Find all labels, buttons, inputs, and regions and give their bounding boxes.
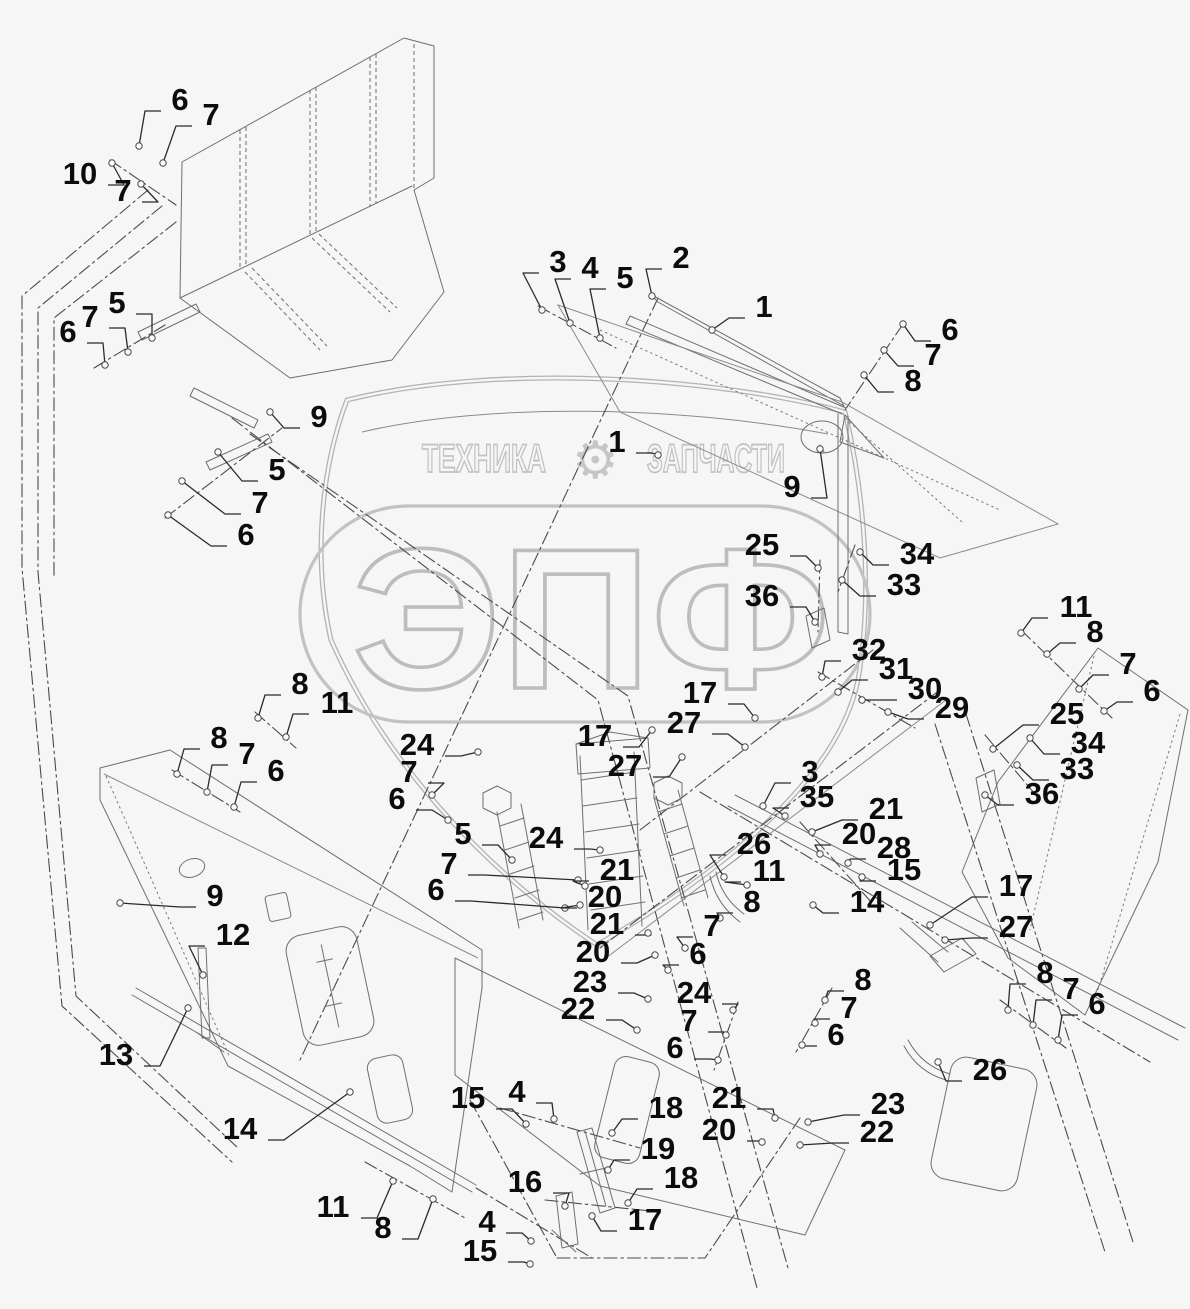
leader-line — [653, 757, 682, 777]
callout-label: 36 — [1025, 776, 1059, 811]
hardware-point — [527, 1261, 533, 1267]
leader-line — [1033, 1000, 1052, 1025]
hardware-point — [200, 972, 206, 978]
hardware-point — [528, 1238, 534, 1244]
leader-line — [120, 903, 196, 907]
mounting-strips — [94, 160, 282, 518]
leader-line — [455, 901, 565, 908]
callout-label: 7 — [114, 173, 131, 208]
callout-label: 14 — [223, 1111, 258, 1146]
callout-label: 6 — [59, 314, 76, 349]
leader-line — [618, 993, 648, 999]
callout-label: 8 — [374, 1210, 391, 1245]
callout-label: 4 — [581, 250, 599, 285]
parts-diagram-stage: ТЕХНИКА ⚙ ЗАПЧАСТИ ЭПФ — [0, 0, 1190, 1309]
hardware-point — [715, 1057, 721, 1063]
hardware-point — [900, 321, 906, 327]
leader-line — [621, 955, 655, 963]
callout-label: 22 — [860, 1114, 894, 1149]
callout-label: 36 — [745, 578, 779, 613]
callout-label: 20 — [842, 816, 876, 851]
hardware-point — [551, 1116, 557, 1122]
callout-label: 8 — [1036, 955, 1053, 990]
callout-label: 17 — [628, 1202, 662, 1237]
leader-line — [189, 946, 205, 975]
hardware-point — [1076, 686, 1082, 692]
hardware-point — [109, 160, 115, 166]
callout-label: 7 — [81, 299, 98, 334]
callout-label: 34 — [900, 536, 935, 571]
hardware-point — [174, 771, 180, 777]
callout-label: 15 — [451, 1080, 485, 1115]
hardware-point — [759, 1139, 765, 1145]
callout-label: 35 — [800, 779, 834, 814]
hardware-point — [819, 674, 825, 680]
leader-line — [1030, 738, 1060, 754]
callout-label: 9 — [310, 399, 327, 434]
callout-label: 20 — [702, 1112, 736, 1147]
hardware-point — [845, 860, 851, 866]
callout-label: 12 — [216, 917, 250, 952]
leader-line — [402, 1199, 433, 1239]
hardware-point — [927, 922, 933, 928]
leader-line — [945, 938, 988, 940]
callout-label: 11 — [753, 853, 786, 888]
callout-label: 18 — [664, 1160, 698, 1195]
leader-line — [468, 875, 578, 880]
hardware-point — [215, 449, 221, 455]
hardware-point — [839, 577, 845, 583]
leader-line — [163, 126, 192, 163]
diagram-svg: ТЕХНИКА ⚙ ЗАПЧАСТИ ЭПФ — [0, 0, 1190, 1309]
callout-label: 13 — [99, 1037, 133, 1072]
hardware-point — [1101, 708, 1107, 714]
hardware-point — [645, 996, 651, 1002]
callout-label: 6 — [689, 936, 706, 971]
hardware-point — [649, 727, 655, 733]
callout-label: 7 — [1119, 646, 1136, 681]
hardware-point — [645, 930, 651, 936]
hardware-point — [817, 446, 823, 452]
hardware-point — [782, 813, 788, 819]
hardware-point — [430, 1196, 436, 1202]
callout-label: 6 — [941, 312, 958, 347]
hardware-point — [652, 952, 658, 958]
callout-label: 11 — [321, 685, 354, 720]
hardware-point — [577, 902, 583, 908]
callout-label: 1 — [608, 424, 625, 459]
callout-label: 8 — [743, 884, 760, 919]
callout-label: 6 — [1143, 673, 1160, 708]
leader-line — [864, 375, 894, 392]
hardware-point — [165, 512, 171, 518]
hardware-point — [136, 143, 142, 149]
hardware-point — [1005, 1007, 1011, 1013]
hardware-point — [179, 478, 185, 484]
hardware-point — [857, 549, 863, 555]
leader-line — [218, 452, 258, 481]
callout-label: 25 — [745, 527, 779, 562]
callout-label: 5 — [616, 260, 633, 295]
hardware-point — [982, 792, 988, 798]
hardware-point — [835, 689, 841, 695]
callout-label: 22 — [561, 991, 595, 1026]
hardware-point — [429, 792, 435, 798]
hardware-point — [742, 744, 748, 750]
callout-label: 6 — [171, 82, 188, 117]
hardware-point — [799, 1042, 805, 1048]
hardware-point — [597, 335, 603, 341]
callout-label: 27 — [999, 909, 1033, 944]
hardware-point — [861, 372, 867, 378]
hardware-point — [942, 937, 948, 943]
hardware-point — [885, 709, 891, 715]
callout-label: 1 — [755, 289, 772, 324]
callout-label: 2 — [672, 240, 689, 275]
hardware-point — [509, 857, 515, 863]
hardware-point — [523, 1121, 529, 1127]
hardware-point — [539, 307, 545, 313]
callout-label: 6 — [427, 872, 444, 907]
hardware-point — [1055, 1037, 1061, 1043]
hardware-point — [655, 452, 661, 458]
hardware-point — [1018, 630, 1024, 636]
leader-line — [87, 343, 105, 365]
hardware-point — [204, 789, 210, 795]
hardware-point — [117, 900, 123, 906]
hardware-point — [149, 335, 155, 341]
leader-line — [286, 714, 309, 737]
hardware-point — [609, 1130, 615, 1136]
hardware-point — [810, 902, 816, 908]
leader-line — [606, 1020, 637, 1030]
hardware-point — [1027, 735, 1033, 741]
hardware-point — [445, 817, 451, 823]
callout-label: 17 — [999, 868, 1033, 903]
hardware-point — [475, 749, 481, 755]
hardware-point — [283, 734, 289, 740]
callout-label: 21 — [712, 1080, 746, 1115]
leader-line — [1079, 675, 1109, 689]
leader-line — [1047, 643, 1076, 654]
hardware-point — [1014, 762, 1020, 768]
hardware-point — [859, 874, 865, 880]
callout-label: 8 — [1086, 614, 1103, 649]
hardware-point — [1030, 1022, 1036, 1028]
hardware-point — [347, 1089, 353, 1095]
callout-label: 24 — [529, 820, 564, 855]
callout-label: 33 — [1060, 751, 1094, 786]
hardware-point — [125, 349, 131, 355]
hardware-point — [730, 1007, 736, 1013]
leader-line — [590, 289, 606, 338]
callout-label: 4 — [508, 1074, 526, 1109]
callout-label: 7 — [251, 485, 268, 520]
leader-line — [270, 412, 300, 428]
leader-line — [168, 515, 227, 546]
callout-label: 9 — [783, 469, 800, 504]
hardware-point — [721, 874, 727, 880]
hardware-point — [935, 1059, 941, 1065]
hardware-point — [562, 1203, 568, 1209]
hardware-point — [102, 362, 108, 368]
callout-label: 15 — [463, 1233, 497, 1268]
callout-label: 6 — [1088, 986, 1105, 1021]
callout-label: 8 — [291, 666, 308, 701]
hardware-point — [881, 347, 887, 353]
callout-label: 3 — [549, 244, 566, 279]
hardware-point — [679, 754, 685, 760]
hardware-point — [709, 327, 715, 333]
hardware-point — [390, 1178, 396, 1184]
hardware-point — [605, 1167, 611, 1173]
leader-line — [712, 318, 745, 330]
callout-label: 9 — [206, 878, 223, 913]
leader-line — [811, 449, 827, 498]
leader-line — [842, 580, 876, 596]
callout-label: 6 — [666, 1030, 683, 1065]
hardware-point — [812, 1020, 818, 1026]
callout-label: 10 — [63, 156, 97, 191]
leader-line — [139, 111, 161, 146]
hardware-point — [805, 1119, 811, 1125]
hardware-point — [760, 803, 766, 809]
leader-line — [268, 1092, 350, 1140]
hardware-point — [797, 1142, 803, 1148]
hardware-point — [649, 293, 655, 299]
hardware-point — [160, 160, 166, 166]
hardware-point — [255, 715, 261, 721]
watermark-brand-left: ТЕХНИКА — [422, 437, 546, 481]
callout-label: 5 — [108, 285, 125, 320]
callout-label: 6 — [237, 517, 254, 552]
callout-label: 8 — [210, 720, 227, 755]
leader-line — [612, 1119, 638, 1133]
leader-line — [574, 849, 600, 850]
callout-label: 16 — [508, 1164, 542, 1199]
leader-line — [555, 279, 571, 323]
leader-line — [712, 734, 745, 747]
callout-label: 7 — [202, 97, 219, 132]
watermark-brand-right: ЗАПЧАСТИ — [647, 437, 785, 481]
callout-label: 14 — [850, 884, 885, 919]
hardware-point — [822, 997, 828, 1003]
hardware-point — [567, 320, 573, 326]
callout-label: 11 — [317, 1189, 350, 1224]
hardware-point — [589, 1213, 595, 1219]
leader-line — [109, 328, 128, 352]
callout-label: 29 — [935, 690, 969, 725]
leader-line — [1104, 702, 1133, 711]
callout-label: 26 — [973, 1052, 1007, 1087]
leader-line — [646, 269, 662, 296]
leader-line — [808, 1115, 860, 1122]
hardware-point — [859, 697, 865, 703]
callout-label: 33 — [887, 567, 921, 602]
callout-label: 6 — [388, 781, 405, 816]
hardware-point — [772, 1115, 778, 1121]
hardware-point — [723, 1032, 729, 1038]
callout-label: 6 — [267, 753, 284, 788]
hardware-point — [752, 715, 758, 721]
hardware-point — [809, 829, 815, 835]
hardware-point — [665, 967, 671, 973]
leader-line — [445, 752, 478, 756]
callout-label: 15 — [887, 852, 921, 887]
leader-line — [813, 905, 839, 913]
hardware-point — [815, 565, 821, 571]
callout-label: 7 — [238, 736, 255, 771]
hardware-point — [817, 851, 823, 857]
callout-label: 18 — [649, 1090, 683, 1125]
hardware-point — [990, 746, 996, 752]
callout-label: 7 — [924, 337, 941, 372]
hardware-point — [812, 619, 818, 625]
hardware-point — [1044, 651, 1050, 657]
hardware-point — [682, 945, 688, 951]
hardware-point — [231, 804, 237, 810]
callout-label: 27 — [608, 748, 642, 783]
leader-line — [207, 765, 228, 792]
leader-line — [523, 273, 542, 310]
leader-line — [800, 1143, 849, 1145]
leader-line — [592, 1216, 617, 1231]
hardware-point — [138, 181, 144, 187]
leader-line — [144, 1008, 188, 1066]
callout-label: 6 — [827, 1017, 844, 1052]
leader-line — [258, 695, 281, 718]
callout-label: 27 — [667, 705, 701, 740]
leader-line — [506, 1233, 531, 1241]
callout-label: 7 — [1062, 971, 1079, 1006]
leader-line — [1021, 618, 1048, 633]
hardware-point — [267, 409, 273, 415]
hardware-point — [634, 1027, 640, 1033]
callout-label: 8 — [904, 363, 921, 398]
hardware-point — [185, 1005, 191, 1011]
callout-label: 5 — [268, 452, 285, 487]
